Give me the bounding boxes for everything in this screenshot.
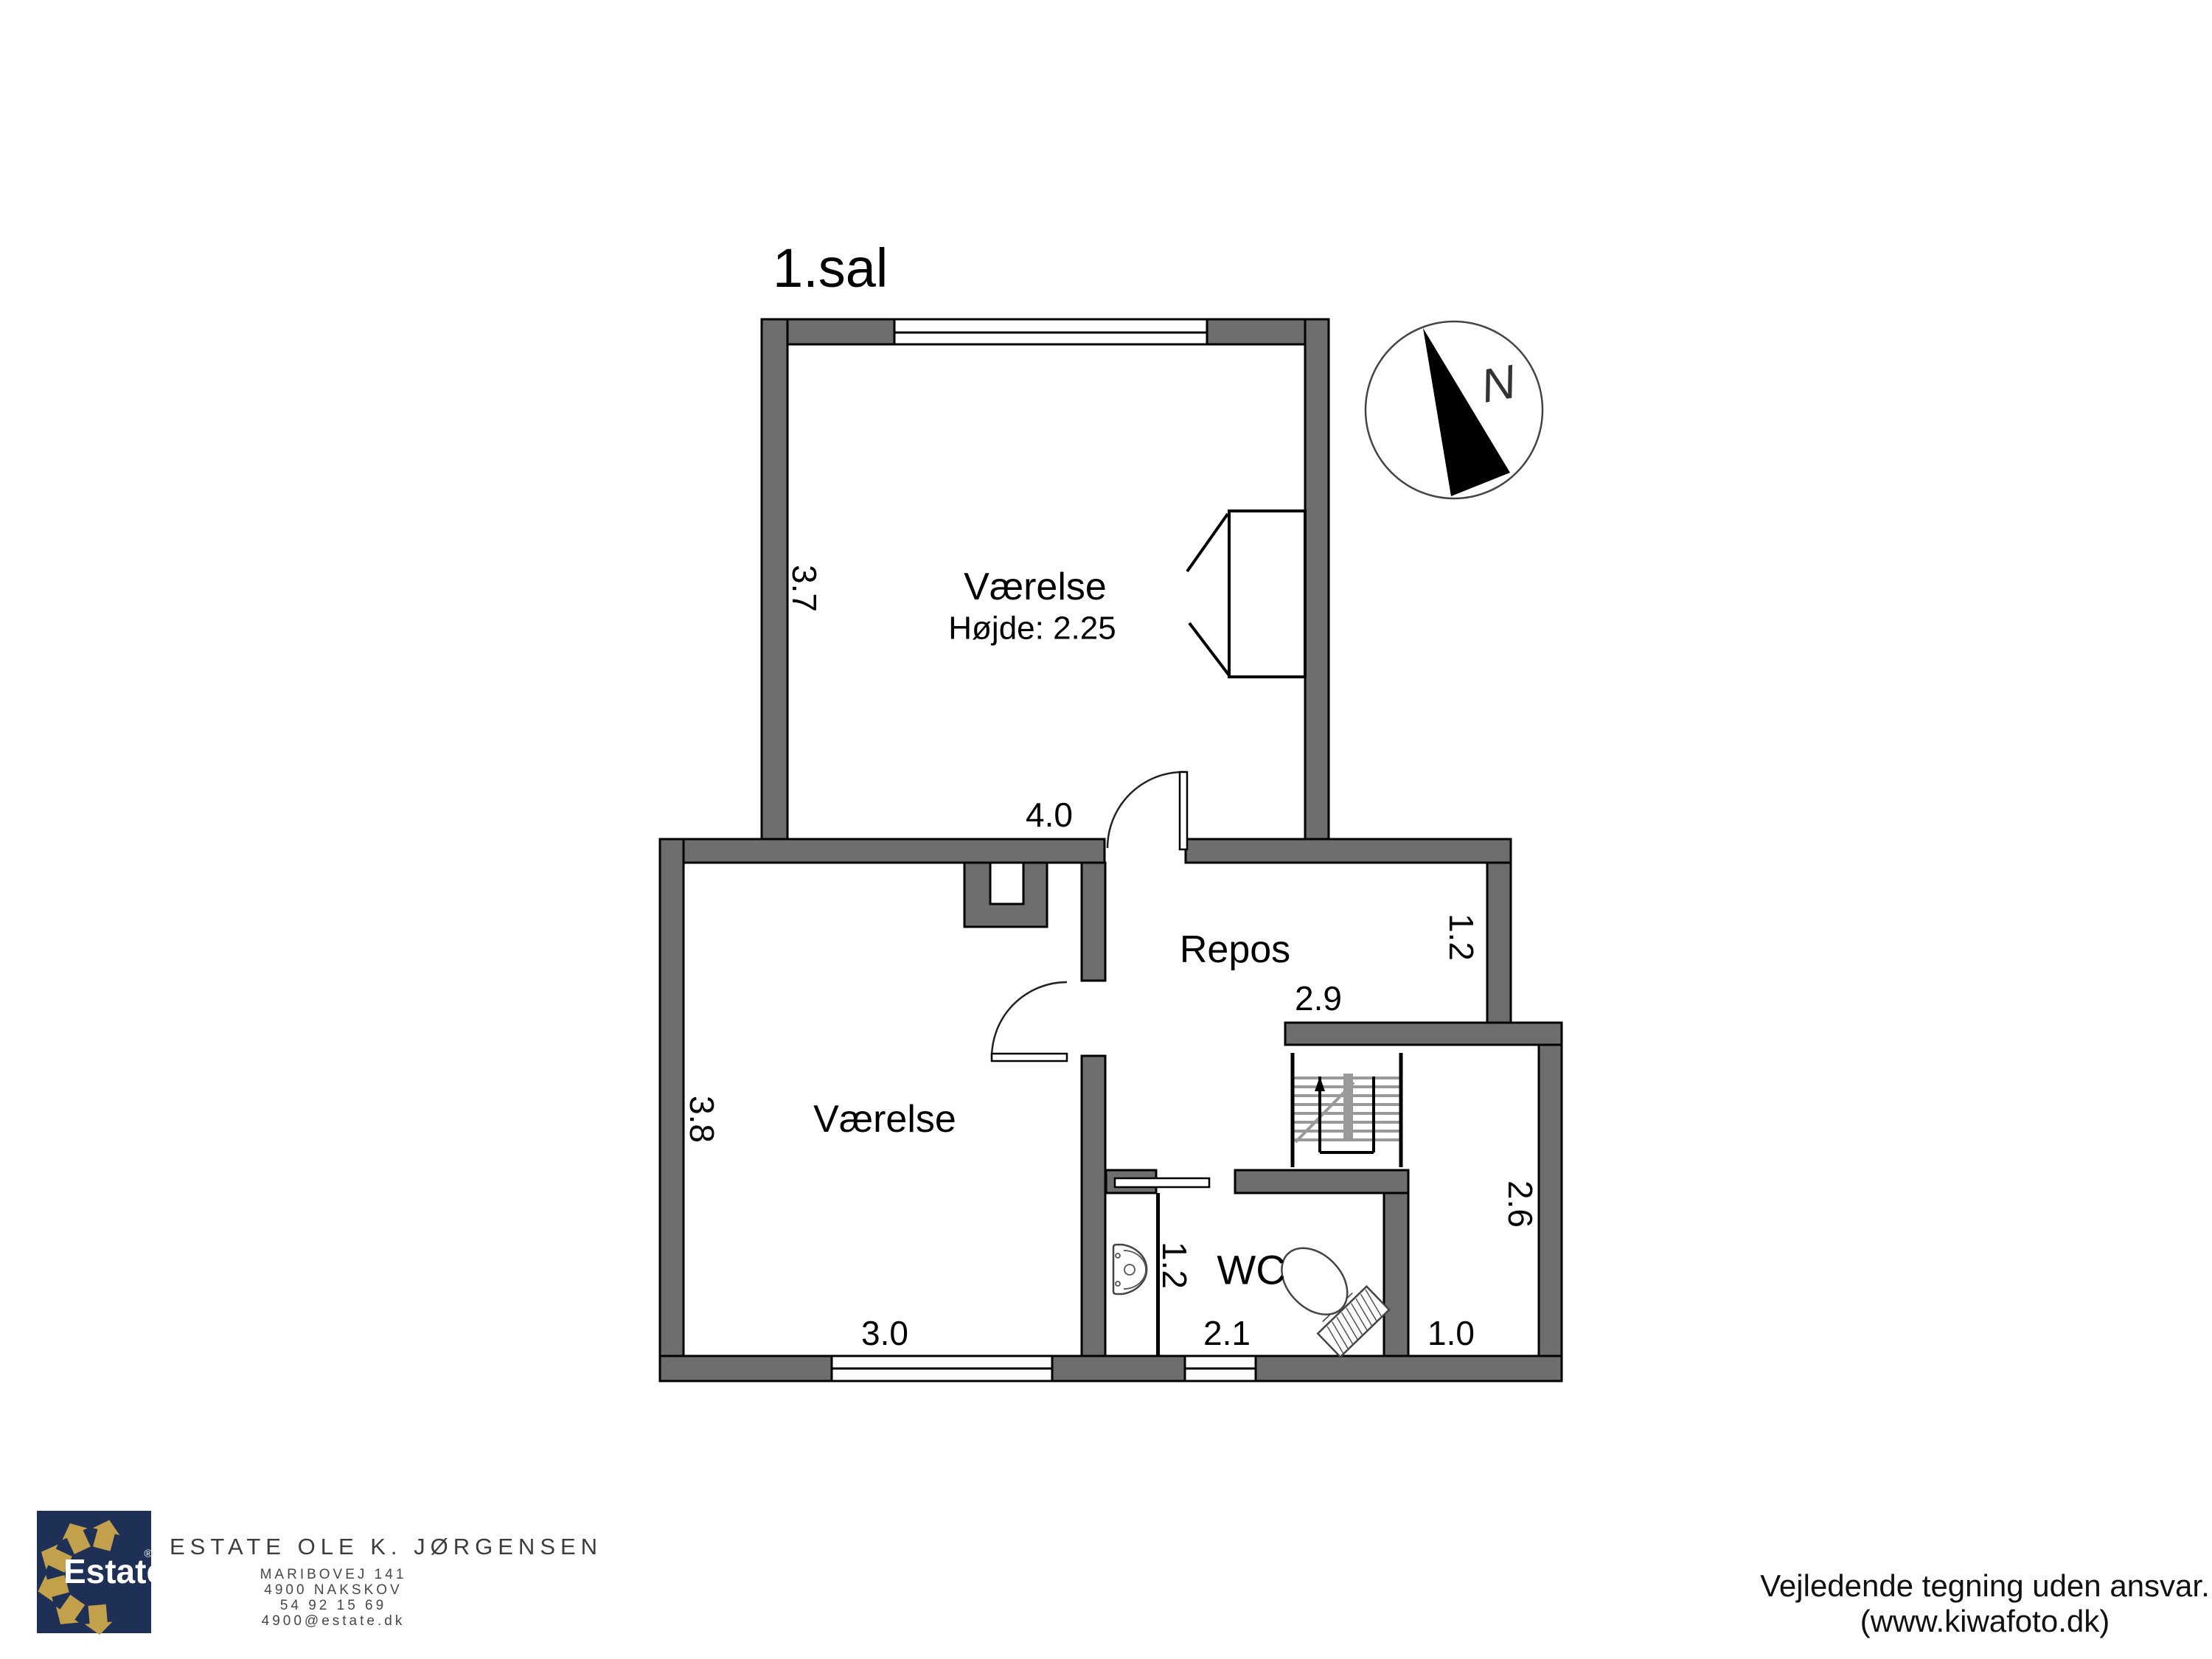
room-height-note: Højde: 2.25 [948,610,1116,646]
dim-wc-niche: 1.2 [1155,1242,1194,1289]
dormer-recess [1229,511,1305,677]
wall-segment [1186,839,1511,863]
estate-registered-mark: ® [144,1548,152,1560]
wall-segment [1082,863,1105,981]
room-label-lower: Værelse [813,1098,956,1141]
dim-upper-depth: 3.7 [785,565,824,612]
estate-logo: Estate ® [35,1511,165,1636]
dim-wc-width: 2.1 [1203,1314,1251,1352]
room-label-wc: WC [1217,1247,1285,1293]
wall-segment [762,319,787,863]
floorplan-canvas: N 1.sal Værelse Højde: 2.25 3.7 4.0 Repo… [0,0,2212,1659]
dim-lower-width: 3.0 [861,1314,908,1352]
agency-name: ESTATE OLE K. JØRGENSEN [170,1534,602,1559]
wall-segment [1384,1193,1408,1356]
agency-address-line: 4900 NAKSKOV [264,1582,402,1598]
page-title: 1.sal [773,237,888,299]
door-leaf-upper-room [1180,772,1187,849]
door-leaf-wc [1115,1178,1209,1187]
wall-segment [1285,1023,1562,1045]
wall-segment [660,1356,1562,1381]
wall-segment [660,839,1105,863]
dim-repos-depth: 1.2 [1442,914,1481,961]
chimney-flue [990,863,1023,904]
wall-segment [1235,1170,1408,1193]
wall-segment [1082,1056,1105,1381]
agency-phone: 54 92 15 69 [280,1598,386,1613]
dim-side-depth: 2.6 [1501,1180,1540,1228]
wall-segment [660,839,684,1381]
wall-segment [1539,1045,1562,1381]
dim-repos-width: 2.9 [1295,979,1342,1018]
stair-rail-center [1343,1074,1353,1141]
wall-segment [1305,319,1329,839]
north-compass-icon: N [1366,321,1543,498]
disclaimer-line-1: Vejledende tegning uden ansvar. [1760,1568,2210,1603]
dim-side-width: 1.0 [1427,1314,1475,1352]
wall-segment [1487,863,1511,1023]
room-label-upper: Værelse [964,566,1107,608]
agency-email: 4900@estate.dk [262,1613,406,1629]
dim-lower-depth: 3.8 [683,1096,721,1143]
room-label-repos: Repos [1180,928,1290,971]
dim-upper-width: 4.0 [1026,796,1073,834]
page-background [0,0,2212,1659]
door-leaf-lower-room [992,1054,1067,1061]
disclaimer-line-2: (www.kiwafoto.dk) [1860,1604,2110,1638]
agency-address-line: MARIBOVEJ 141 [260,1567,407,1582]
